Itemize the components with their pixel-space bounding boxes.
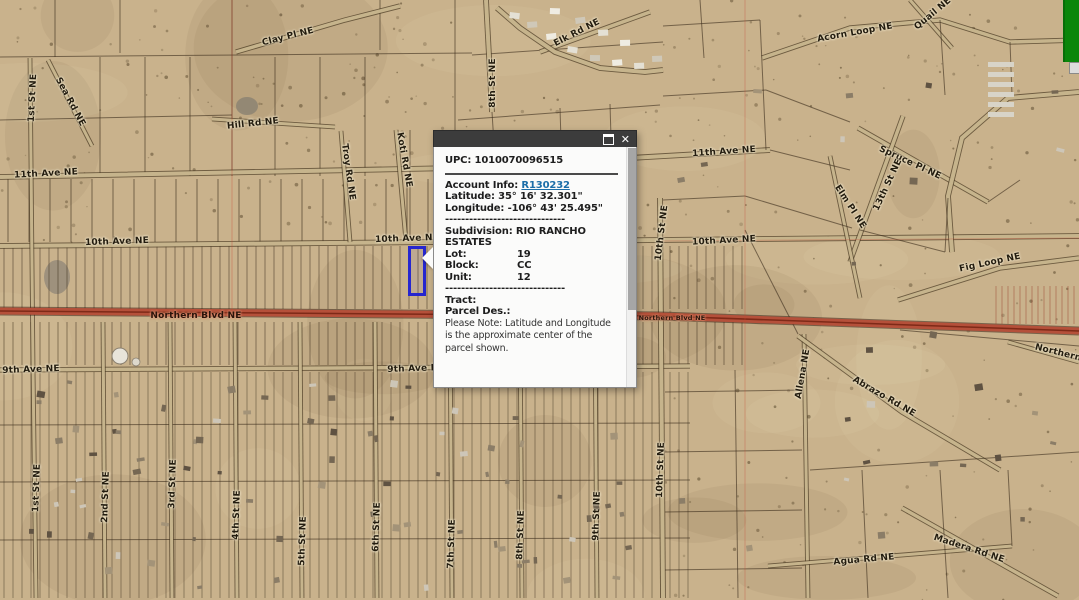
lot-value: 19 (517, 249, 531, 261)
account-info-link[interactable]: R130232 (521, 180, 569, 191)
parcel-des-label: Parcel Des.: (445, 306, 618, 318)
longitude-text: Longitude: -106° 43' 25.495" (445, 203, 618, 215)
block-value: CC (517, 260, 531, 272)
divider (445, 173, 618, 175)
subdivision-text: Subdivision: RIO RANCHO ESTATES (445, 226, 618, 249)
popup-header[interactable]: ✕ (433, 130, 637, 147)
unit-row: Unit: 12 (445, 272, 618, 284)
separator-text: ------------------------------ (445, 214, 618, 226)
gis-parcel-viewer: Clay Pl NEElk Rd NE8th St NEAcorn Loop N… (0, 0, 1079, 600)
parcel-info-popup: ✕ UPC: 1010070096515 Account Info: R1302… (433, 130, 637, 388)
lot-label: Lot: (445, 249, 517, 261)
scrollbar-thumb[interactable] (628, 148, 636, 310)
separator-text: ------------------------------ (445, 283, 618, 295)
popup-note: Please Note: Latitude and Longitude is t… (445, 318, 618, 356)
upc-text: UPC: 1010070096515 (445, 155, 618, 167)
close-icon[interactable]: ✕ (621, 134, 630, 145)
account-info-line: Account Info: R130232 (445, 180, 618, 192)
block-row: Block: CC (445, 260, 618, 272)
tract-label: Tract: (445, 295, 618, 307)
maximize-icon[interactable] (603, 134, 614, 145)
latitude-text: Latitude: 35° 16' 32.301" (445, 191, 618, 203)
block-label: Block: (445, 260, 517, 272)
popup-body: UPC: 1010070096515 Account Info: R130232… (433, 147, 637, 388)
account-info-label: Account Info: (445, 180, 518, 191)
unit-value: 12 (517, 272, 531, 284)
popup-pointer-arrow (422, 247, 433, 269)
overview-toggle-button[interactable] (1069, 62, 1079, 74)
overview-map[interactable] (1063, 0, 1079, 62)
unit-label: Unit: (445, 272, 517, 284)
lot-row: Lot: 19 (445, 249, 618, 261)
popup-scrollbar[interactable] (626, 147, 636, 387)
popup-content: UPC: 1010070096515 Account Info: R130232… (434, 147, 626, 387)
